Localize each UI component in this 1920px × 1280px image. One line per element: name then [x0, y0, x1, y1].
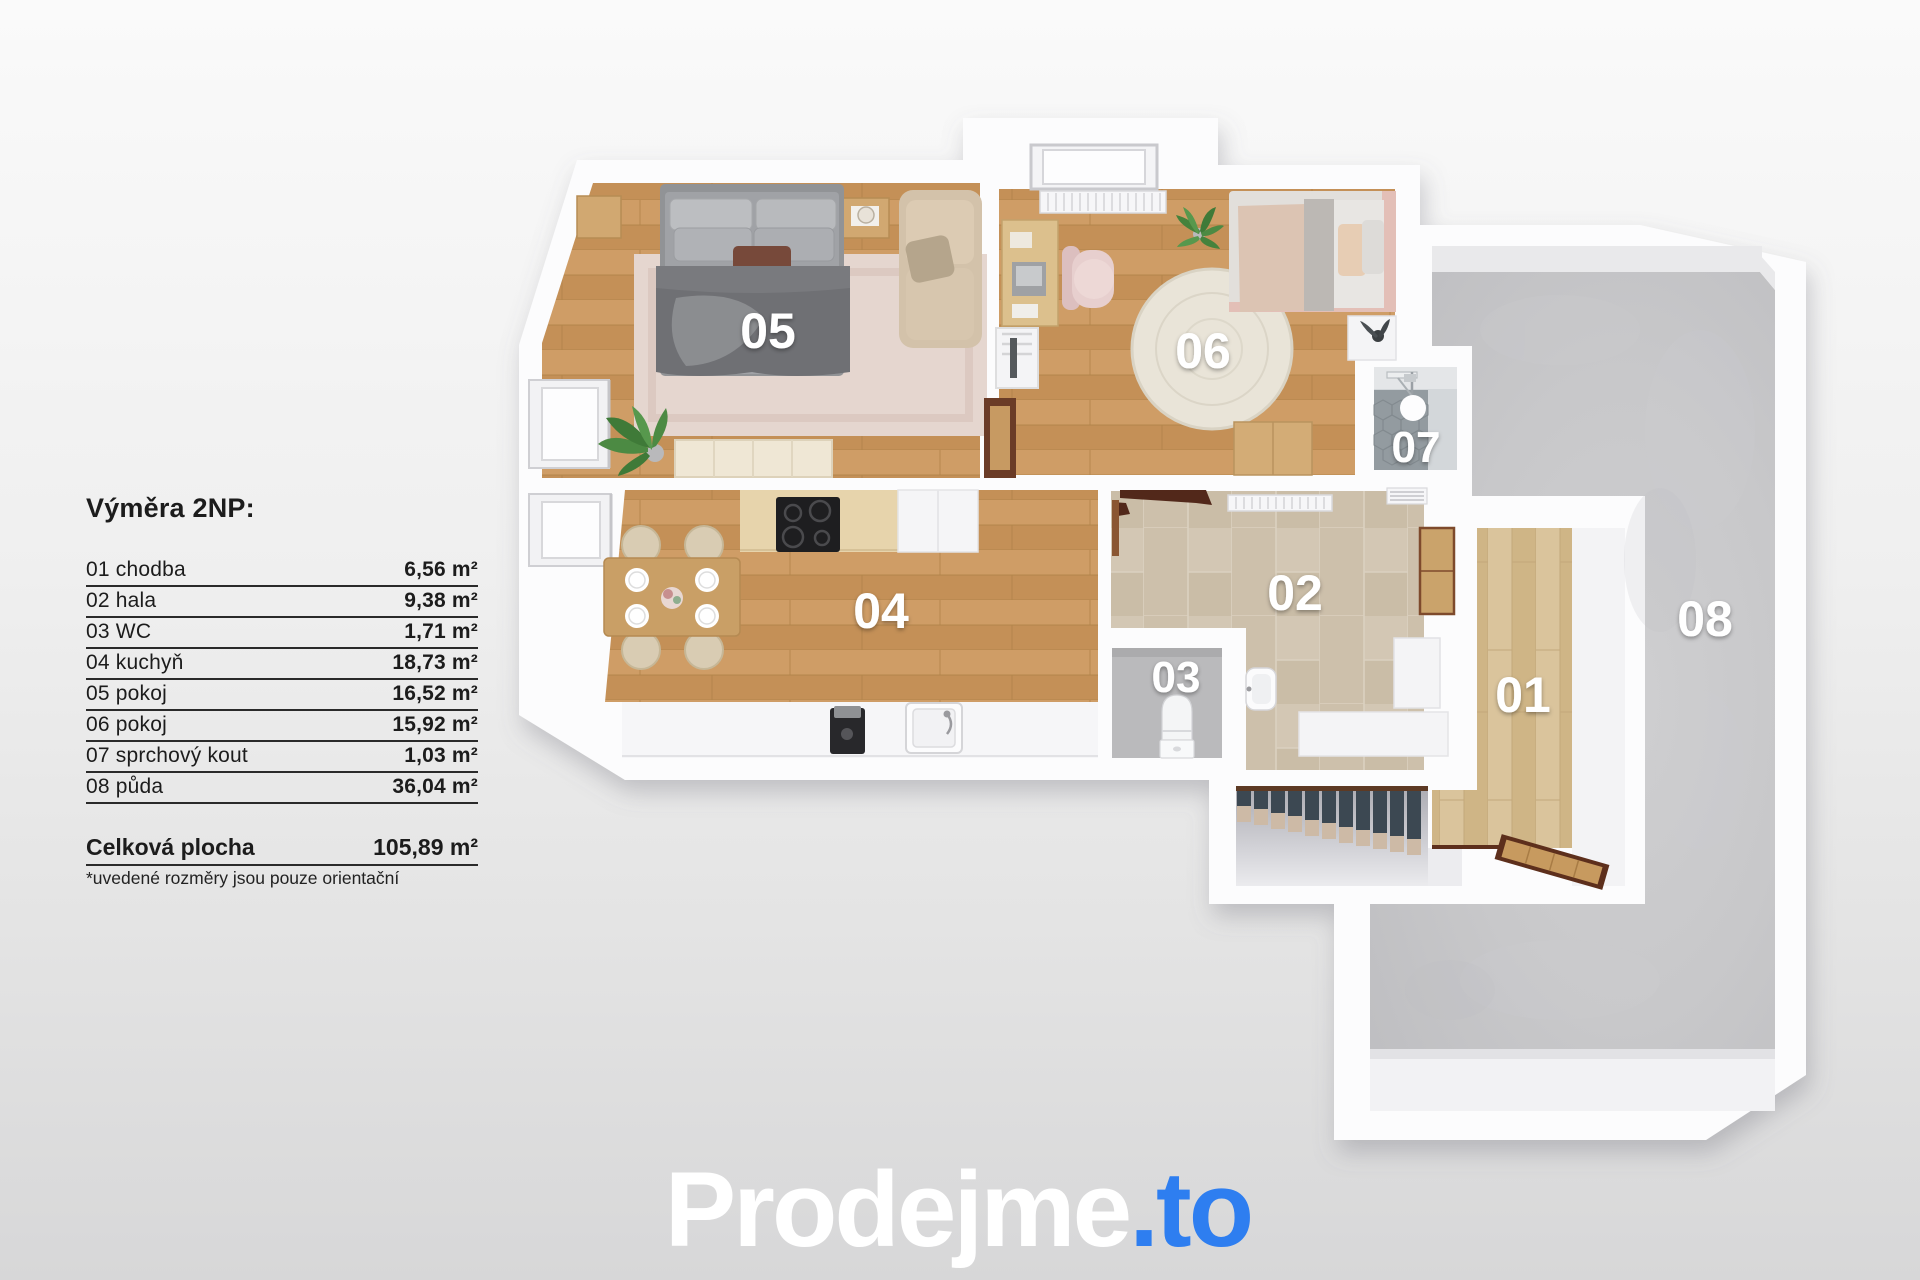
svg-text:01: 01: [1495, 667, 1551, 723]
svg-text:02: 02: [1267, 565, 1323, 621]
svg-text:04: 04: [853, 583, 909, 639]
svg-text:06: 06: [1175, 323, 1231, 379]
svg-text:05: 05: [740, 303, 796, 359]
svg-text:07: 07: [1392, 423, 1441, 472]
svg-text:08: 08: [1677, 591, 1733, 647]
svg-text:03: 03: [1152, 653, 1201, 702]
